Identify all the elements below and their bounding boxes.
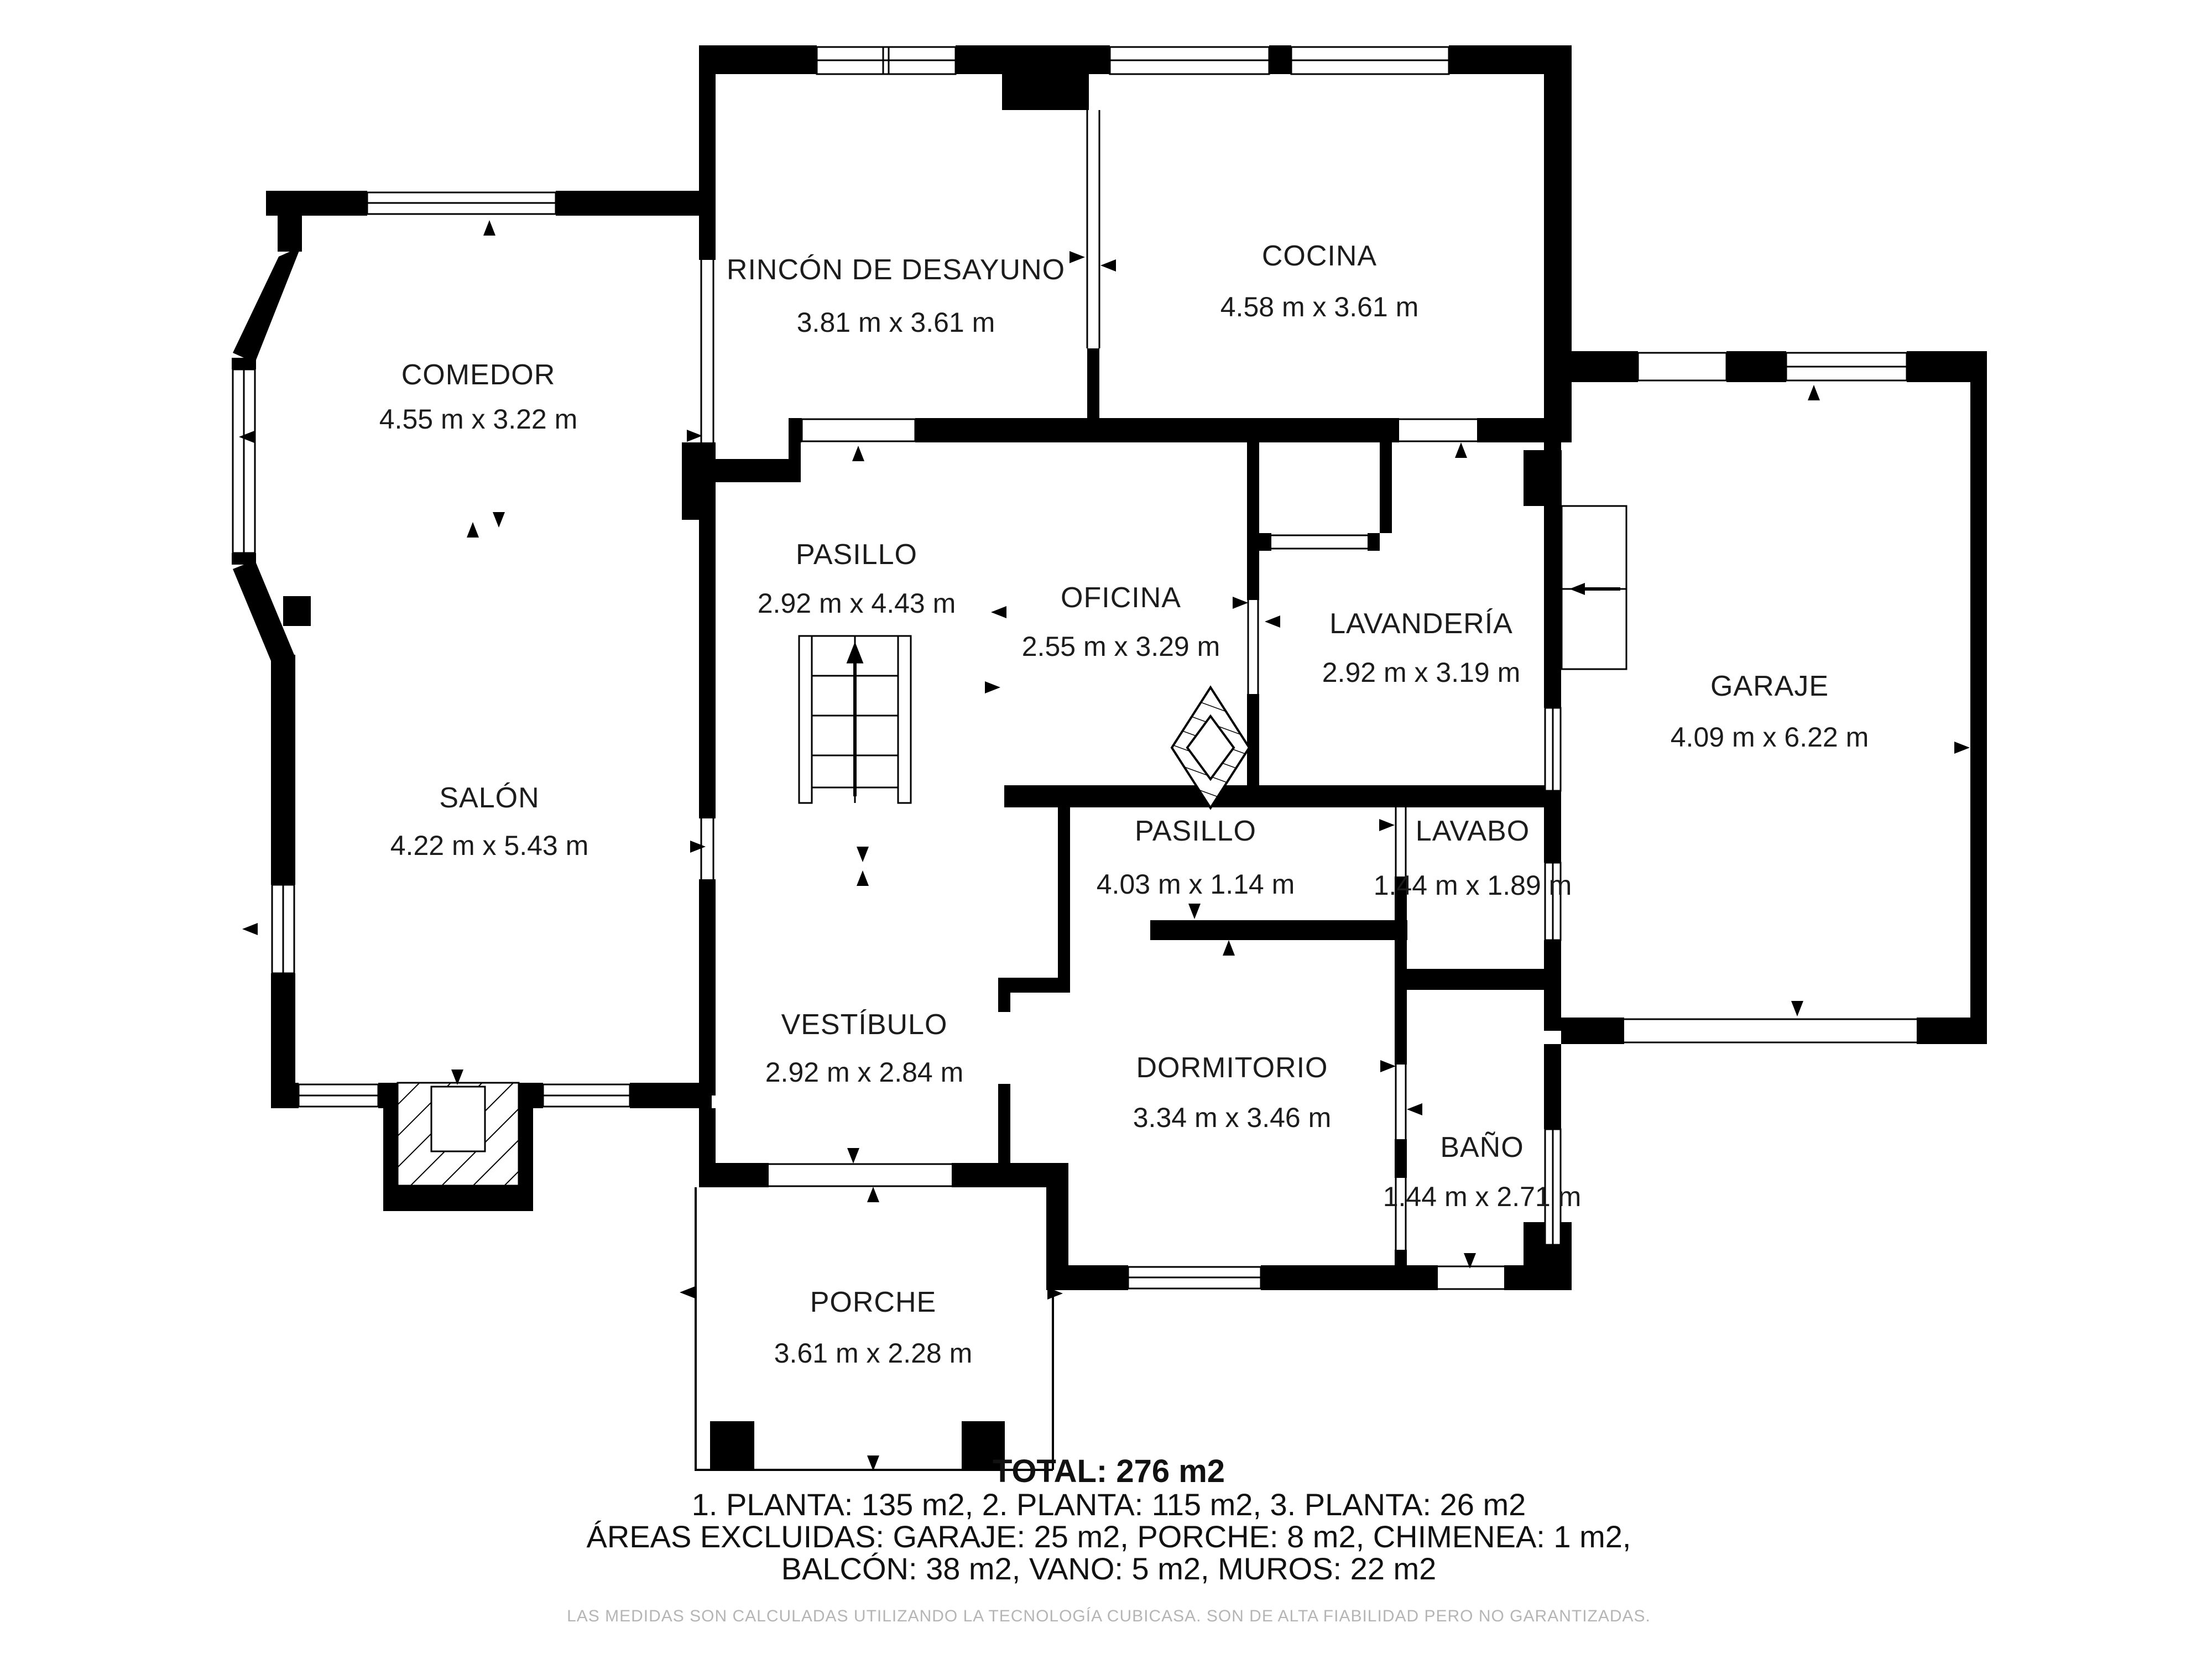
room-dims-porche: 3.61 m x 2.28 m xyxy=(774,1338,973,1369)
window xyxy=(272,885,294,973)
garage-entry-steps xyxy=(1562,506,1626,669)
summary-line-excluidas: ÁREAS EXCLUIDAS: GARAJE: 25 m2, PORCHE: … xyxy=(587,1519,1631,1554)
window xyxy=(1110,47,1269,74)
disclaimer-text: LAS MEDIDAS SON CALCULADAS UTILIZANDO LA… xyxy=(567,1607,1651,1625)
room-dims-pasillo: 2.92 m x 4.43 m xyxy=(758,588,956,619)
room-label-lavanderia: LAVANDERÍA xyxy=(1329,608,1513,640)
room-dims-oficina: 2.55 m x 3.29 m xyxy=(1022,631,1220,662)
garage-vano xyxy=(1638,353,1726,380)
room-label-salon: SALÓN xyxy=(439,782,539,814)
room-dims-comedor: 4.55 m x 3.22 m xyxy=(379,404,578,435)
wall-notch xyxy=(283,596,311,626)
room-dims-lavabo: 1.44 m x 1.89 m xyxy=(1374,870,1572,901)
window xyxy=(1786,353,1907,380)
floorplan-svg: RINCÓN DE DESAYUNO 3.81 m x 3.61 m COCIN… xyxy=(0,0,2212,1659)
fireplace xyxy=(398,1083,519,1186)
summary-total: TOTAL: 276 m2 xyxy=(993,1453,1225,1489)
room-label-porche: PORCHE xyxy=(810,1286,936,1318)
room-label-lavabo: LAVABO xyxy=(1416,815,1530,847)
floorplan-page: RINCÓN DE DESAYUNO 3.81 m x 3.61 m COCIN… xyxy=(0,0,2212,1659)
window xyxy=(1545,708,1561,791)
room-label-rincon: RINCÓN DE DESAYUNO xyxy=(727,254,1065,286)
room-label-pasillo: PASILLO xyxy=(796,539,917,571)
window xyxy=(1291,47,1449,74)
window xyxy=(817,47,956,74)
summary-line-balcon: BALCÓN: 38 m2, VANO: 5 m2, MUROS: 22 m2 xyxy=(781,1551,1437,1586)
window xyxy=(1128,1267,1261,1288)
room-label-bano: BAÑO xyxy=(1440,1131,1524,1164)
cased-opening xyxy=(802,419,915,441)
room-label-vestibulo: VESTÍBULO xyxy=(781,1009,948,1041)
window xyxy=(233,369,255,553)
room-dims-salon: 4.22 m x 5.43 m xyxy=(390,830,589,861)
room-label-oficina: OFICINA xyxy=(1061,582,1181,614)
room-label-pasillo2: PASILLO xyxy=(1135,815,1256,847)
room-dims-cocina: 4.58 m x 3.61 m xyxy=(1220,291,1419,322)
summary-line-plantas: 1. PLANTA: 135 m2, 2. PLANTA: 115 m2, 3.… xyxy=(692,1487,1526,1522)
room-dims-dormitorio: 3.34 m x 3.46 m xyxy=(1133,1102,1332,1133)
room-label-dormitorio: DORMITORIO xyxy=(1136,1052,1328,1084)
top-chimney-block xyxy=(1002,45,1089,110)
room-dims-pasillo2: 4.03 m x 1.14 m xyxy=(1097,869,1295,900)
room-dims-bano: 1.44 m x 2.71 m xyxy=(1383,1181,1582,1212)
room-label-garaje: GARAJE xyxy=(1710,670,1829,702)
room-dims-garaje: 4.09 m x 6.22 m xyxy=(1671,722,1869,753)
window xyxy=(299,1084,378,1107)
room-dims-lavanderia: 2.92 m x 3.19 m xyxy=(1322,657,1521,688)
porch-post xyxy=(710,1421,754,1470)
room-dims-rincon: 3.81 m x 3.61 m xyxy=(797,307,995,338)
window xyxy=(367,192,556,214)
room-label-cocina: COCINA xyxy=(1262,240,1377,272)
room-dims-vestibulo: 2.92 m x 2.84 m xyxy=(765,1057,964,1088)
window xyxy=(543,1084,630,1107)
room-label-comedor: COMEDOR xyxy=(401,359,556,391)
background xyxy=(0,0,2212,1659)
